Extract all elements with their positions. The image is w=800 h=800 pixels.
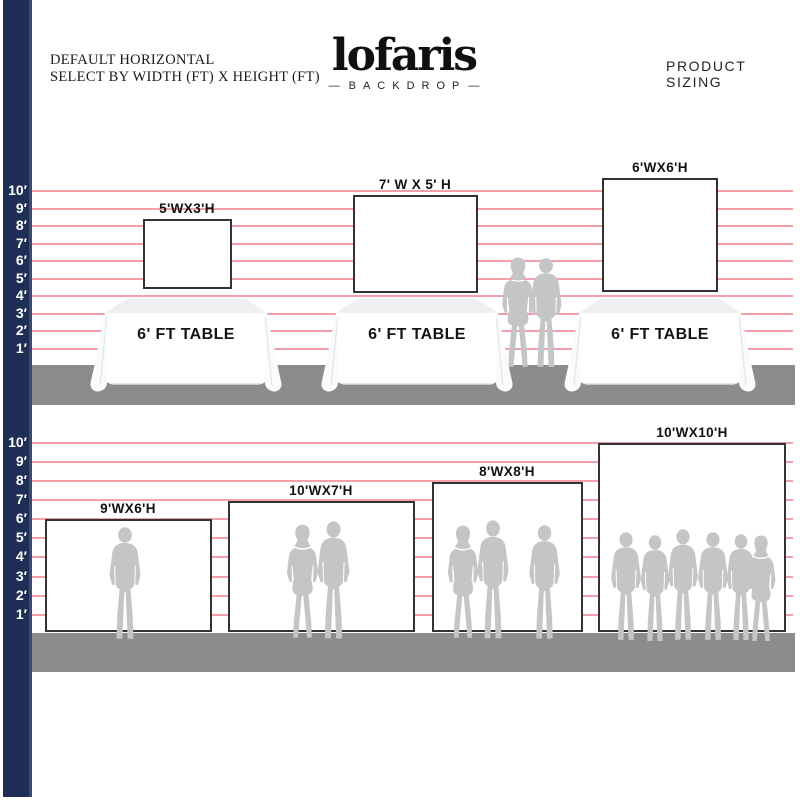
- ruler-label-6ft: 6′: [0, 509, 27, 527]
- brand-logo-tagline: — BACKDROP —: [318, 80, 490, 92]
- ruler-label-5ft: 5′: [0, 528, 27, 546]
- logo-dash-left: —: [329, 80, 340, 92]
- table-with-tablecloth: [86, 297, 286, 393]
- ruler-bar: [3, 0, 32, 797]
- ruler-label-8ft: 8′: [0, 471, 27, 489]
- ruler-label-4ft: 4′: [0, 286, 27, 304]
- page-title: PRODUCT SIZING: [666, 58, 800, 90]
- ruler-label-1ft: 1′: [0, 339, 27, 357]
- ruler-label-8ft: 8′: [0, 216, 27, 234]
- ruler-label-7ft: 7′: [0, 490, 27, 508]
- ruler-label-10ft: 10′: [0, 181, 27, 199]
- brand-logo-name: lofaris: [318, 32, 490, 80]
- brand-logo: lofaris — BACKDROP —: [318, 32, 490, 92]
- table-label-1: 6' FT TABLE: [106, 326, 266, 344]
- ruler-label-4ft: 4′: [0, 547, 27, 565]
- ruler-label-9ft: 9′: [0, 452, 27, 470]
- ruler-label-6ft: 6′: [0, 251, 27, 269]
- backdrop-8x8-label: 8'WX8'H: [427, 464, 587, 479]
- ruler-label-7ft: 7′: [0, 234, 27, 252]
- logo-dash-right: —: [468, 80, 479, 92]
- header-left-line1: DEFAULT HORIZONTAL: [50, 52, 320, 69]
- header-left: DEFAULT HORIZONTAL SELECT BY WIDTH (FT) …: [50, 52, 320, 86]
- backdrop-6x6: [602, 178, 718, 292]
- header-left-line2: SELECT BY WIDTH (FT) X HEIGHT (FT): [50, 69, 320, 86]
- man-silhouette: [101, 526, 149, 644]
- man-silhouette: [521, 524, 568, 644]
- table-with-tablecloth: [560, 297, 760, 393]
- ruler-label-2ft: 2′: [0, 586, 27, 604]
- backdrop-5x3: [143, 219, 232, 289]
- ruler-label-2ft: 2′: [0, 321, 27, 339]
- table-with-tablecloth: [317, 297, 517, 393]
- ruler-label-3ft: 3′: [0, 567, 27, 585]
- backdrop-7x5: [353, 195, 478, 293]
- ruler-label-9ft: 9′: [0, 199, 27, 217]
- logo-tagline-text: BACKDROP: [349, 80, 467, 92]
- backdrop-7x5-label: 7' W X 5' H: [335, 177, 495, 192]
- backdrop-6x6-label: 6'WX6'H: [580, 160, 740, 175]
- ruler-label-10ft: 10′: [0, 433, 27, 451]
- product-sizing-infographic: DEFAULT HORIZONTAL SELECT BY WIDTH (FT) …: [0, 0, 800, 800]
- woman-silhouette: [740, 534, 782, 646]
- backdrop-5x3-label: 5'WX3'H: [107, 201, 267, 216]
- table-label-2: 6' FT TABLE: [337, 326, 497, 344]
- ruler-label-3ft: 3′: [0, 304, 27, 322]
- backdrop-9x6-label: 9'WX6'H: [48, 501, 208, 516]
- man-silhouette: [309, 520, 358, 644]
- backdrop-10x10-label: 10'WX10'H: [612, 425, 772, 440]
- man-silhouette: [469, 519, 517, 644]
- ruler-label-1ft: 1′: [0, 605, 27, 623]
- backdrop-10x7-label: 10'WX7'H: [241, 483, 401, 498]
- ruler-label-5ft: 5′: [0, 269, 27, 287]
- man-silhouette: [522, 257, 570, 372]
- table-label-3: 6' FT TABLE: [580, 326, 740, 344]
